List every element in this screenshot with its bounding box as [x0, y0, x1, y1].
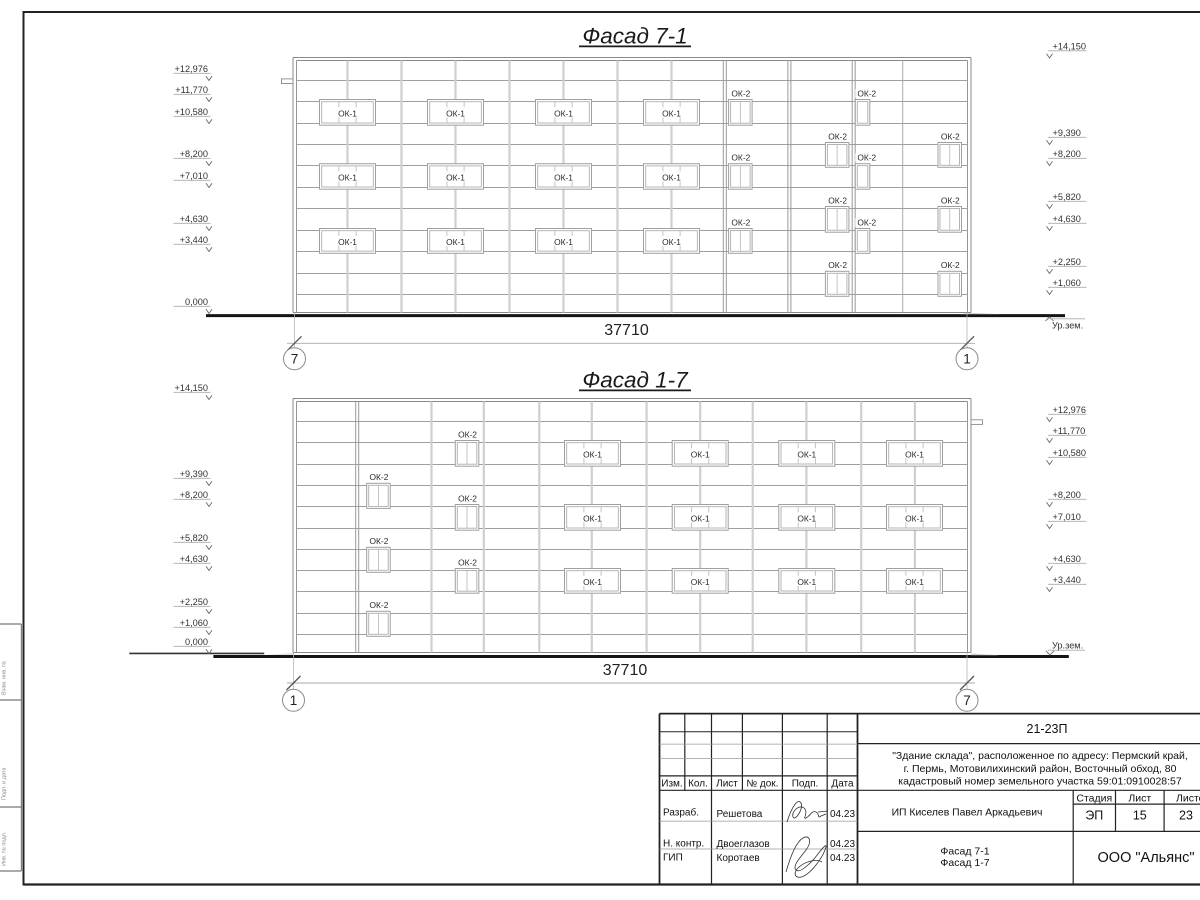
svg-text:+1,060: +1,060 — [1053, 278, 1081, 288]
svg-text:21-23П: 21-23П — [1027, 722, 1068, 736]
svg-text:Лист: Лист — [716, 779, 738, 790]
svg-text:ОК-1: ОК-1 — [691, 514, 710, 524]
svg-text:ОК-1: ОК-1 — [554, 173, 573, 183]
svg-text:ОК-2: ОК-2 — [828, 195, 847, 205]
svg-text:15: 15 — [1133, 809, 1147, 823]
svg-text:ОК-1: ОК-1 — [662, 237, 681, 247]
svg-text:+12,976: +12,976 — [175, 64, 208, 74]
svg-text:"Здание склада", расположенное: "Здание склада", расположенное по адресу… — [892, 750, 1188, 762]
svg-text:Стадия: Стадия — [1076, 793, 1112, 805]
svg-text:0,000: 0,000 — [185, 297, 208, 307]
svg-text:ОК-2: ОК-2 — [731, 88, 750, 98]
svg-text:ОК-2: ОК-2 — [370, 472, 389, 482]
svg-text:+5,820: +5,820 — [1053, 192, 1081, 202]
svg-text:ОК-1: ОК-1 — [905, 577, 924, 587]
svg-text:04.23: 04.23 — [830, 839, 855, 850]
svg-text:Дата: Дата — [831, 779, 854, 790]
svg-text:37710: 37710 — [603, 662, 648, 679]
svg-text:ГИП: ГИП — [663, 853, 683, 864]
svg-text:ОК-1: ОК-1 — [554, 109, 573, 119]
svg-text:ОК-1: ОК-1 — [554, 237, 573, 247]
svg-text:ОК-1: ОК-1 — [446, 237, 465, 247]
svg-text:+8,200: +8,200 — [180, 490, 208, 500]
svg-text:+11,770: +11,770 — [175, 85, 208, 95]
svg-text:Фасад 7-1: Фасад 7-1 — [940, 846, 989, 858]
svg-text:ИП Киселев Павел Аркадьевич: ИП Киселев Павел Аркадьевич — [892, 808, 1043, 819]
svg-text:Разраб.: Разраб. — [663, 807, 699, 819]
svg-text:ОК-2: ОК-2 — [941, 131, 960, 141]
svg-text:+4,630: +4,630 — [1053, 214, 1081, 224]
svg-text:Фасад 7-1: Фасад 7-1 — [582, 24, 687, 49]
svg-text:Решетова: Решетова — [717, 809, 763, 820]
svg-text:Н. контр.: Н. контр. — [663, 839, 704, 850]
svg-text:ОК-1: ОК-1 — [662, 173, 681, 183]
svg-text:ОК-1: ОК-1 — [797, 514, 816, 524]
svg-text:+8,200: +8,200 — [1053, 490, 1081, 500]
svg-text:+8,200: +8,200 — [180, 149, 208, 159]
svg-text:ОК-1: ОК-1 — [583, 577, 602, 587]
svg-text:+11,770: +11,770 — [1053, 426, 1086, 436]
svg-text:+7,010: +7,010 — [1053, 512, 1081, 522]
svg-text:+3,440: +3,440 — [180, 235, 208, 245]
svg-text:+8,200: +8,200 — [1053, 149, 1081, 159]
svg-text:ОК-1: ОК-1 — [905, 450, 924, 460]
svg-text:+3,440: +3,440 — [1053, 575, 1081, 585]
svg-text:Фасад 1-7: Фасад 1-7 — [582, 368, 689, 393]
svg-text:Кол.: Кол. — [688, 779, 708, 790]
svg-text:+14,150: +14,150 — [1053, 41, 1086, 51]
svg-text:+2,250: +2,250 — [1053, 257, 1081, 267]
svg-text:+5,820: +5,820 — [180, 533, 208, 543]
svg-text:ОК-1: ОК-1 — [691, 577, 710, 587]
svg-text:ОК-1: ОК-1 — [905, 514, 924, 524]
svg-text:ОК-1: ОК-1 — [797, 450, 816, 460]
svg-text:ОК-2: ОК-2 — [857, 153, 876, 163]
svg-text:+1,060: +1,060 — [180, 618, 208, 628]
svg-text:Подп.: Подп. — [792, 779, 819, 790]
svg-text:Коротаев: Коротаев — [717, 853, 760, 864]
svg-text:Двоеглазов: Двоеглазов — [717, 839, 770, 850]
svg-text:ОК-2: ОК-2 — [828, 260, 847, 270]
svg-text:ОК-1: ОК-1 — [691, 450, 710, 460]
svg-text:Фасад 1-7: Фасад 1-7 — [940, 857, 989, 869]
svg-text:ЭП: ЭП — [1085, 809, 1103, 823]
svg-text:ОК-1: ОК-1 — [338, 237, 357, 247]
svg-text:ОК-1: ОК-1 — [583, 450, 602, 460]
svg-text:ОК-2: ОК-2 — [857, 88, 876, 98]
svg-text:ООО "Альянс": ООО "Альянс" — [1098, 850, 1195, 866]
svg-text:Ур.зем.: Ур.зем. — [1052, 640, 1083, 650]
svg-text:ОК-2: ОК-2 — [731, 153, 750, 163]
svg-text:Взам. инв. №: Взам. инв. № — [2, 661, 8, 695]
svg-text:Изм.: Изм. — [661, 779, 682, 790]
svg-text:ОК-2: ОК-2 — [458, 493, 477, 503]
svg-text:7: 7 — [963, 693, 971, 708]
svg-text:+9,390: +9,390 — [1053, 128, 1081, 138]
svg-text:+9,390: +9,390 — [180, 469, 208, 479]
svg-text:1: 1 — [290, 693, 298, 708]
svg-text:ОК-2: ОК-2 — [828, 131, 847, 141]
svg-text:кадастровый номер земельного у: кадастровый номер земельного участка 59:… — [898, 776, 1182, 788]
svg-text:ОК-1: ОК-1 — [338, 109, 357, 119]
svg-text:ОК-2: ОК-2 — [941, 195, 960, 205]
svg-text:ОК-1: ОК-1 — [583, 514, 602, 524]
svg-text:1: 1 — [963, 352, 971, 367]
svg-text:ОК-1: ОК-1 — [338, 173, 357, 183]
svg-text:ОК-2: ОК-2 — [458, 557, 477, 567]
svg-text:23: 23 — [1179, 809, 1193, 823]
svg-text:ОК-2: ОК-2 — [458, 429, 477, 439]
svg-text:+12,976: +12,976 — [1053, 405, 1086, 415]
svg-text:Листов: Листов — [1176, 793, 1200, 805]
svg-text:+2,250: +2,250 — [180, 597, 208, 607]
svg-text:+14,150: +14,150 — [175, 383, 208, 393]
svg-text:ОК-1: ОК-1 — [446, 109, 465, 119]
svg-text:ОК-1: ОК-1 — [662, 109, 681, 119]
svg-text:ОК-2: ОК-2 — [731, 217, 750, 227]
svg-text:04.23: 04.23 — [830, 809, 855, 820]
svg-text:+10,580: +10,580 — [175, 107, 208, 117]
svg-text:ОК-1: ОК-1 — [797, 577, 816, 587]
svg-text:Подп. и дата: Подп. и дата — [2, 767, 8, 800]
svg-text:ОК-2: ОК-2 — [370, 600, 389, 610]
svg-text:+10,580: +10,580 — [1053, 448, 1086, 458]
svg-text:Инв. № подл.: Инв. № подл. — [2, 831, 8, 866]
svg-text:ОК-1: ОК-1 — [446, 173, 465, 183]
svg-text:7: 7 — [291, 352, 299, 367]
svg-text:ОК-2: ОК-2 — [370, 536, 389, 546]
svg-text:04.23: 04.23 — [830, 853, 855, 864]
svg-text:+7,010: +7,010 — [180, 171, 208, 181]
svg-text:г. Пермь, Мотовилихинский райо: г. Пермь, Мотовилихинский район, Восточн… — [904, 763, 1177, 775]
svg-text:Ур.зем.: Ур.зем. — [1052, 321, 1083, 331]
svg-text:+4,630: +4,630 — [180, 554, 208, 564]
svg-text:ОК-2: ОК-2 — [941, 260, 960, 270]
svg-text:+4,630: +4,630 — [180, 214, 208, 224]
svg-text:№ док.: № док. — [746, 779, 778, 790]
svg-text:+4,630: +4,630 — [1053, 554, 1081, 564]
svg-text:ОК-2: ОК-2 — [857, 217, 876, 227]
svg-text:Лист: Лист — [1128, 793, 1151, 805]
svg-text:37710: 37710 — [604, 322, 649, 339]
svg-text:0,000: 0,000 — [185, 637, 208, 647]
